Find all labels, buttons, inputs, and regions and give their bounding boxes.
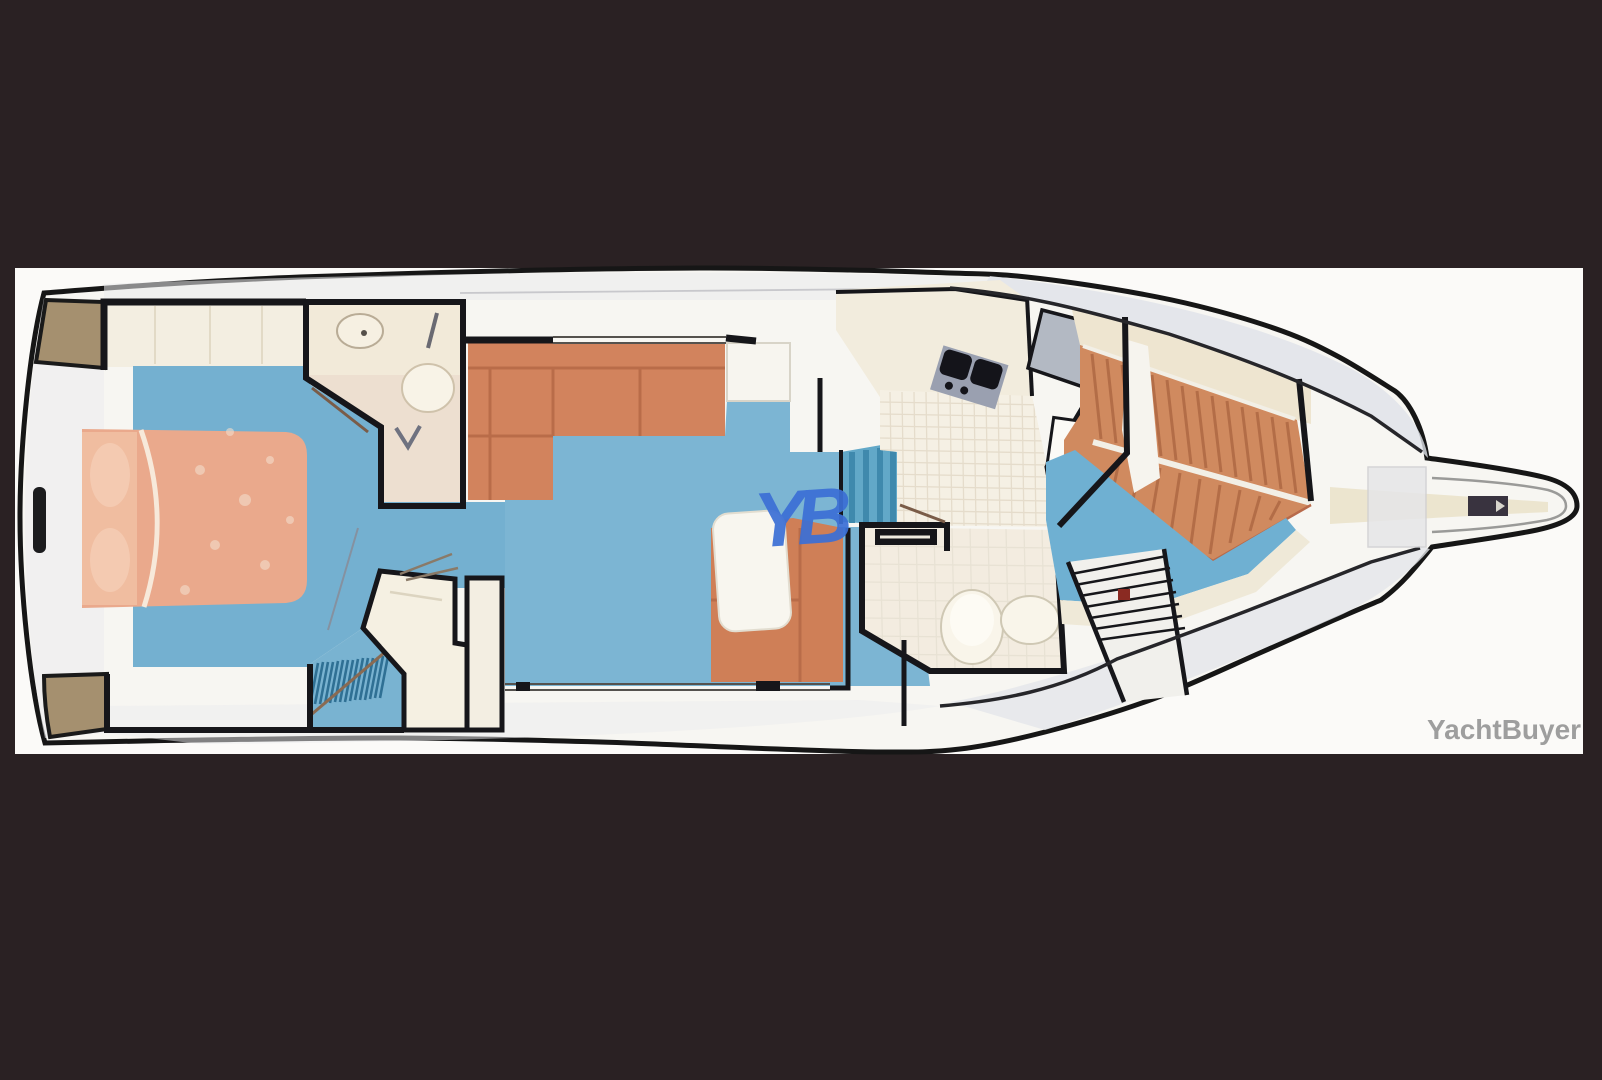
svg-text:YB: YB	[751, 470, 853, 564]
svg-text:YachtBuyer: YachtBuyer	[1427, 714, 1581, 745]
